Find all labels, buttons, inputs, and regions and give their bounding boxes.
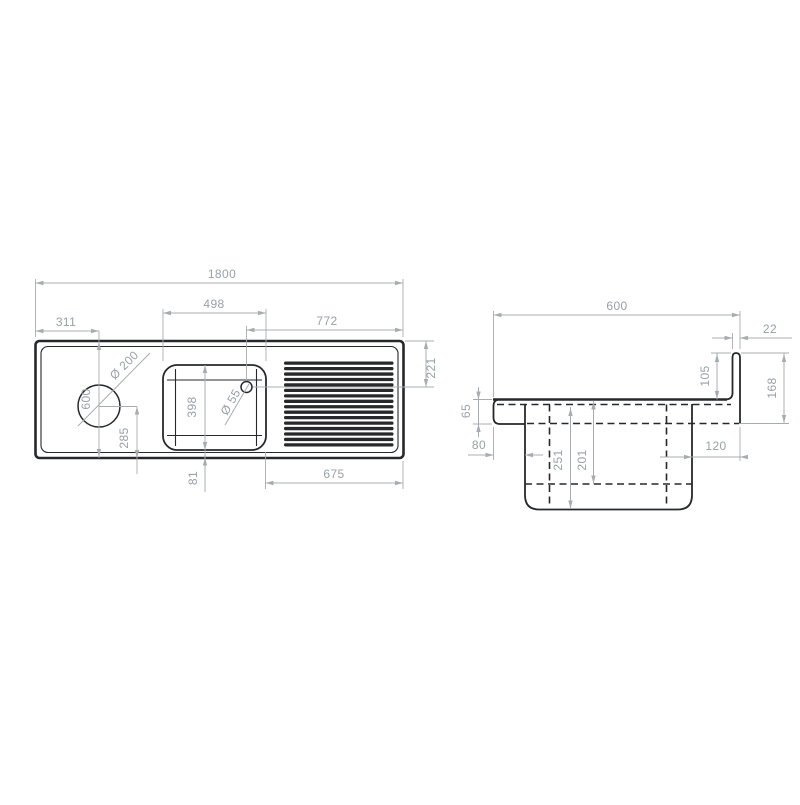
dim-plan-overall-depth: 600 <box>79 388 93 409</box>
dim-drainer-length: 675 <box>323 467 344 481</box>
dim-overall-length: 1800 <box>208 267 236 281</box>
dim-tap-center-from-left: 311 <box>56 315 76 329</box>
sink-technical-drawing: 1800 311 498 772 221 600 Ø 200 Ø 55 398 … <box>0 0 800 800</box>
plan-view: 1800 311 498 772 221 600 Ø 200 Ø 55 398 … <box>36 267 439 492</box>
drainer-ribs <box>284 362 394 447</box>
waste-hole <box>241 382 252 393</box>
section-view: 600 22 105 168 65 80 120 251 201 <box>459 299 792 510</box>
dim-front-to-bowl: 80 <box>472 438 486 452</box>
dim-section-overall-depth: 600 <box>606 299 627 313</box>
dim-tap-hole-diameter: Ø 200 <box>107 348 141 382</box>
bowl-outline <box>163 365 266 450</box>
dim-front-edge-height: 65 <box>459 404 473 418</box>
dim-bowl-depth-inner: 201 <box>575 449 589 470</box>
dim-waste-to-right-edge: 772 <box>316 314 337 328</box>
dim-upstand-height: 105 <box>698 365 712 386</box>
dim-bowl-length: 498 <box>203 297 224 311</box>
technical-drawing-page: 1800 311 498 772 221 600 Ø 200 Ø 55 398 … <box>0 0 800 800</box>
dim-bowl-width: 398 <box>185 396 199 417</box>
dim-bowl-to-back: 120 <box>705 439 726 453</box>
dim-bowl-depth-outer: 251 <box>551 449 565 470</box>
dim-back-overall-height: 168 <box>765 377 779 398</box>
dim-upstand-thickness: 22 <box>763 322 777 336</box>
dim-waste-from-back-edge: 221 <box>424 357 438 378</box>
front-edge-profile <box>494 400 526 425</box>
section-dimension-lines <box>468 315 792 509</box>
upstand-profile <box>725 353 740 424</box>
bowl-inner-walls <box>167 369 262 446</box>
dim-bowl-to-front-edge: 81 <box>186 471 200 485</box>
bowl-inner-walls-hidden <box>550 405 667 509</box>
dim-tap-center-from-front: 285 <box>117 427 131 448</box>
dim-waste-hole-diameter: Ø 55 <box>218 387 244 418</box>
section-extension-lines <box>473 311 789 461</box>
